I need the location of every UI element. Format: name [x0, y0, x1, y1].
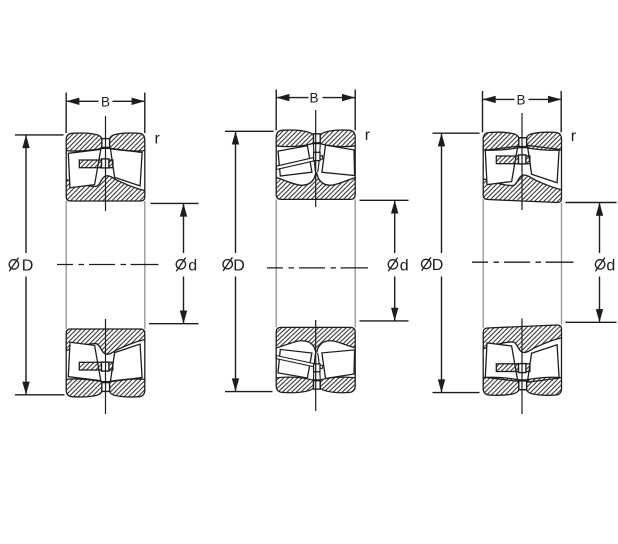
svg-text:D: D [22, 258, 34, 275]
svg-text:D: D [233, 257, 245, 274]
svg-text:B: B [101, 94, 110, 109]
svg-text:d: d [400, 258, 409, 275]
svg-text:D: D [432, 257, 444, 274]
svg-text:r: r [155, 131, 161, 148]
svg-text:d: d [606, 258, 615, 275]
svg-text:r: r [571, 128, 577, 145]
svg-text:d: d [188, 258, 197, 275]
svg-text:r: r [365, 127, 371, 144]
svg-text:B: B [309, 91, 318, 106]
svg-text:B: B [516, 92, 525, 107]
